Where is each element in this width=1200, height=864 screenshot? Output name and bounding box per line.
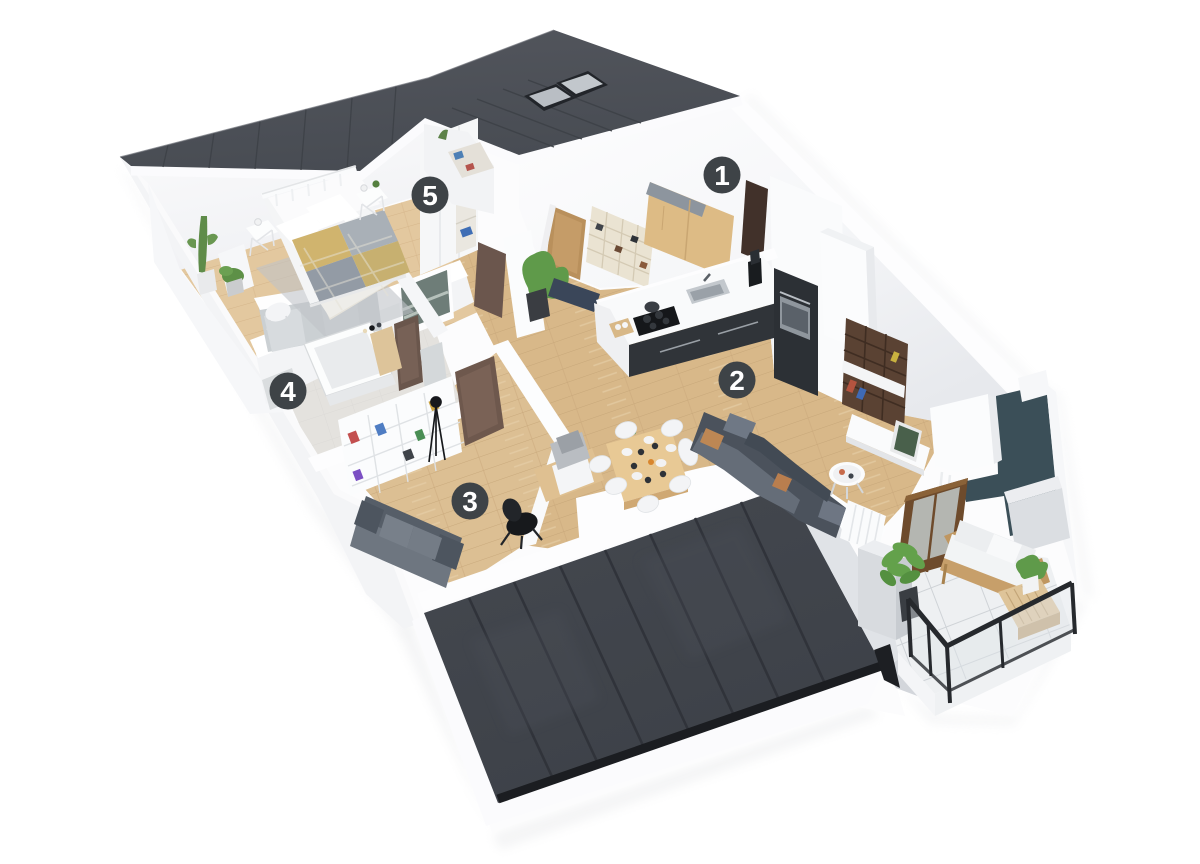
svg-text:3: 3 [462,486,478,517]
svg-text:5: 5 [422,180,438,211]
svg-text:2: 2 [729,365,745,396]
svg-text:1: 1 [714,160,730,191]
svg-text:4: 4 [280,376,296,407]
